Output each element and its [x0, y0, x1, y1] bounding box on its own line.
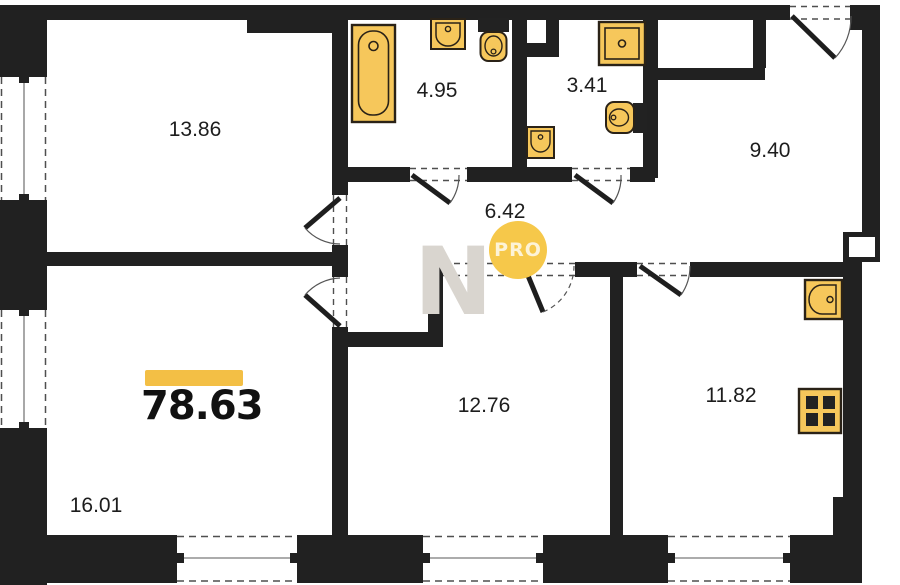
shower-cabin-icon: [599, 22, 645, 65]
wall: [297, 535, 423, 583]
window-bottom-left: [177, 537, 297, 582]
wall: [512, 20, 527, 182]
wall: [332, 20, 348, 195]
wall: [0, 5, 47, 77]
wall: [0, 200, 47, 310]
wall: [332, 245, 348, 277]
wall: [643, 68, 765, 80]
watermark-pro-label: PRO: [494, 239, 542, 261]
wall: [47, 252, 332, 266]
wall: [643, 20, 658, 178]
door-wc: [572, 169, 630, 204]
watermark-pro-badge: PRO: [489, 221, 547, 279]
toilet-icon: [606, 102, 647, 133]
door-bathroom: [410, 169, 467, 204]
wall: [790, 535, 862, 583]
room-area-label-bedroom-bottom-middle: 12.76: [458, 394, 511, 418]
wall: [833, 497, 862, 539]
room-area-label-wc: 3.41: [567, 74, 608, 98]
room-area-label-bedroom-top-left: 13.86: [169, 118, 222, 142]
kitchen-sink-icon: [805, 280, 842, 319]
wall: [843, 262, 862, 502]
room-area-label-bathroom: 4.95: [417, 79, 458, 103]
wall: [690, 262, 862, 277]
wall: [527, 43, 559, 57]
wash-basin-icon: [527, 127, 554, 158]
sink-icon: [431, 19, 465, 49]
wall: [575, 262, 637, 277]
room-area-label-living-room: 16.01: [70, 494, 123, 518]
door-living-room: [305, 277, 347, 327]
door-kitchen: [637, 264, 690, 296]
floor-plan: 13.864.953.419.406.4212.7611.8216.01 78.…: [0, 0, 900, 585]
window-left-top: [2, 77, 46, 200]
window-bottom-middle: [423, 537, 543, 582]
wall: [348, 167, 410, 182]
wall: [610, 277, 623, 535]
wall: [332, 327, 348, 535]
bathtub-icon: [352, 25, 395, 122]
room-area-label-kitchen: 11.82: [706, 384, 757, 408]
stove-icon: [799, 389, 841, 433]
wall: [47, 5, 790, 20]
door-bedroom-top-left: [305, 195, 347, 245]
window-bottom-right: [668, 537, 790, 582]
window-left-bottom: [2, 310, 46, 428]
total-area-value: 78.63: [141, 383, 251, 429]
watermark-letter: N: [414, 236, 493, 330]
wall: [753, 20, 766, 68]
room-area-label-entry-hall: 9.40: [750, 139, 791, 163]
shaft: [849, 237, 875, 257]
wall: [543, 535, 668, 583]
wall: [862, 5, 880, 245]
toilet-icon: [478, 18, 509, 61]
wall: [0, 535, 177, 583]
door-entrance: [790, 7, 851, 59]
